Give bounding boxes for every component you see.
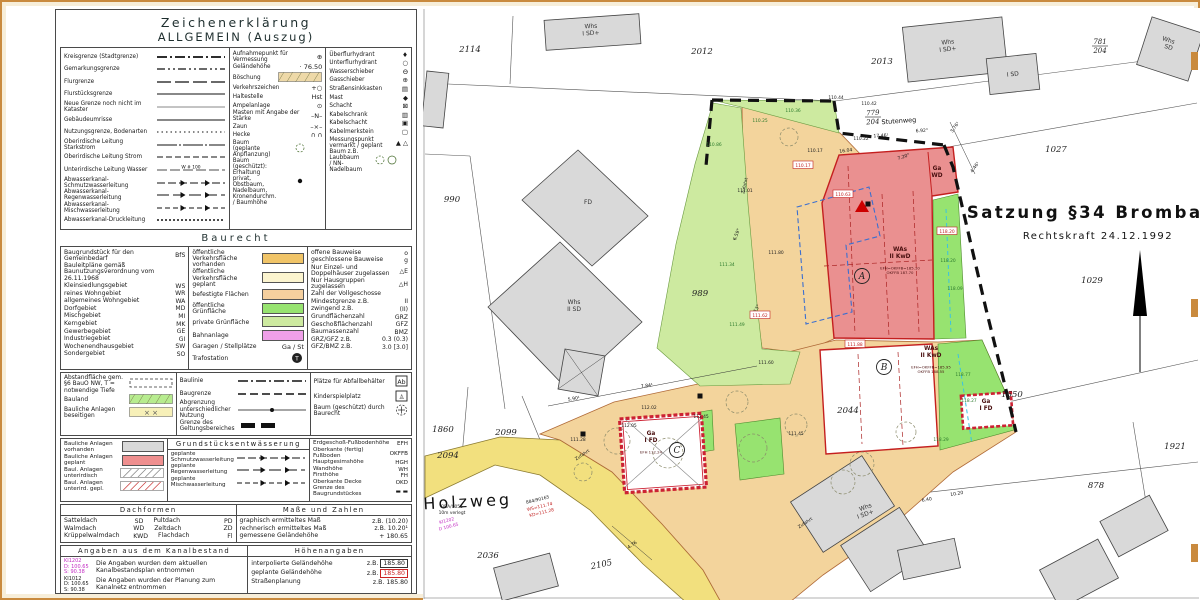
svg-text:Whs: Whs bbox=[568, 299, 581, 306]
legend-abbr: g bbox=[404, 257, 408, 264]
svg-text:WAs: WAs bbox=[893, 247, 908, 253]
legend-label: Böschung bbox=[233, 75, 277, 81]
legend-row: GrundflächenzahlGRZ bbox=[311, 314, 408, 321]
legend-label: Hecke bbox=[233, 132, 309, 138]
legend-row: Baum (geschützt) durch Baurecht bbox=[314, 404, 408, 418]
legend-row: Ampelanlage⊙ bbox=[233, 102, 323, 110]
mid-col3: Plätze für AbfallbehälterAbKinderspielpl… bbox=[310, 373, 411, 435]
legend-label: Abwasserkanal-Mischwasserleitung bbox=[64, 202, 154, 214]
legend-abbr: FH bbox=[401, 473, 408, 479]
svg-text:II KwD: II KwD bbox=[890, 254, 911, 260]
dach-label: Krüppelwalmdach bbox=[64, 533, 131, 540]
bau-col2: Grundstücksentwässerunggeplante Schmutzw… bbox=[167, 439, 309, 501]
color-swatch bbox=[262, 289, 304, 300]
svg-text:111.34: 111.34 bbox=[719, 262, 735, 268]
legend-row: Abstandfläche gem. §6 BauO NW, T = notwe… bbox=[64, 375, 173, 394]
legend-symbol-slot bbox=[120, 481, 164, 493]
legend-label: GFZ/BMZ z.B. bbox=[311, 344, 380, 350]
legend-row: Flurgrenze bbox=[64, 76, 226, 88]
legend-row: allgemeines WohngebietWA bbox=[64, 298, 185, 305]
legend-symbol-slot: ▣ bbox=[402, 119, 408, 127]
legend-symbol: W # 100 bbox=[156, 164, 226, 174]
svg-text:990: 990 bbox=[444, 195, 461, 205]
kanal-code: KI1012D: 100.65S: 90.38 bbox=[64, 577, 94, 594]
baurecht-col3: offene Bauweiseogeschlossene BauweisegNu… bbox=[307, 247, 411, 369]
svg-text:111.80: 111.80 bbox=[768, 250, 784, 256]
hoehen-label: Straßenplanung bbox=[251, 579, 371, 586]
legend-label: Wasserschieber bbox=[329, 69, 401, 75]
legend-row: Überflurhydrant♦ bbox=[329, 51, 408, 59]
legend-row: Aufnahmepunkt für Vermessung⊕ bbox=[233, 51, 323, 63]
legend-symbol bbox=[278, 143, 322, 153]
legend-label: Kabelschacht bbox=[329, 120, 400, 126]
legend-symbol-slot bbox=[122, 441, 164, 454]
legend-symbol: ◆ bbox=[403, 94, 408, 102]
legend-symbol-slot bbox=[236, 464, 306, 476]
hoehen-prefix: z.B. bbox=[367, 570, 378, 577]
legend-symbol bbox=[120, 481, 164, 491]
sheet-frame: Zeichenerklärung ALLGEMEIN (Auszug) Krei… bbox=[0, 0, 1200, 600]
svg-text:2044: 2044 bbox=[836, 406, 859, 416]
legend-row: Oberirdische Leitung Starkstrom bbox=[64, 139, 226, 151]
legend-label: öffentliche Verkehrsfläche geplant bbox=[192, 269, 260, 288]
svg-text:1027: 1027 bbox=[1045, 145, 1067, 155]
legend-symbol: Ga / St bbox=[282, 343, 304, 351]
svg-text:204: 204 bbox=[1092, 47, 1106, 55]
legend-row: WasserschieberΘ bbox=[329, 68, 408, 76]
legend-abbr: (II) bbox=[400, 306, 408, 313]
dach-label: Flachdach bbox=[150, 533, 225, 540]
legend-row: Unterirdische Leitung WasserW # 100 bbox=[64, 164, 226, 176]
legend-row: Oberirdische Leitung Strom bbox=[64, 151, 226, 163]
legend-label: Kabelmerkstein bbox=[329, 129, 400, 135]
legend-dach-masse-box: DachformenSatteldachSDPultdachPDWalmdach… bbox=[60, 504, 412, 544]
legend-label: öffentliche Verkehrsfläche vorhanden bbox=[192, 250, 260, 269]
mid-col1: Abstandfläche gem. §6 BauO NW, T = notwe… bbox=[61, 373, 176, 435]
dach-abbr: SD bbox=[135, 518, 144, 525]
legend-row: öffentliche Verkehrsfläche geplant bbox=[192, 269, 304, 288]
legend-label: Kabelschrank bbox=[329, 112, 400, 118]
legend-row: Gemarkungsgrenze bbox=[64, 63, 226, 75]
legend-symbol: +○ bbox=[311, 84, 322, 92]
legend-symbol-slot bbox=[364, 155, 408, 167]
legend-row: Mast◆ bbox=[329, 94, 408, 102]
legend-symbol: ⊠ bbox=[403, 102, 408, 110]
legend-symbol: Hst bbox=[312, 93, 323, 101]
legend-abbr: △H bbox=[399, 281, 408, 288]
legend-row: Baugrenze bbox=[180, 388, 307, 400]
legend-symbol-slot bbox=[278, 143, 322, 155]
legend-row: Baul. Anlagen unterirdisch bbox=[64, 468, 164, 480]
color-swatch bbox=[262, 303, 304, 314]
legend-label: Geländehöhe bbox=[233, 64, 298, 70]
legend-row: Geländehöhe· 76.50 bbox=[233, 63, 323, 71]
legend-label: Baum z.B. Laubbaum / NN-Nadelbaum bbox=[329, 149, 362, 173]
legend-row: Baugrundstück für den GemeinbedarfBfS bbox=[64, 250, 185, 263]
legend-abbr: WS bbox=[175, 283, 185, 290]
legend-label: Sondergebiet bbox=[64, 351, 175, 357]
legend-row: Bauliche Anlagen vorhanden bbox=[64, 441, 164, 454]
legend-symbol-slot bbox=[262, 289, 304, 302]
legend-label: reines Wohngebiet bbox=[64, 291, 173, 297]
kanal-section: Angaben aus dem KanalbestandKI1202D: 100… bbox=[61, 546, 247, 594]
svg-text:1650: 1650 bbox=[1001, 390, 1023, 400]
legend-symbol-slot: · 76.50 bbox=[300, 63, 323, 71]
legend-row: Abwasserkanal-Regenwasserleitung bbox=[64, 189, 226, 201]
legend-row: Neue Grenze noch nicht im Kataster bbox=[64, 101, 226, 113]
legend-row: TrafostationT bbox=[192, 352, 304, 366]
legend-label: Aufnahmepunkt für Vermessung bbox=[233, 51, 315, 63]
svg-text:204: 204 bbox=[865, 118, 880, 127]
kanal-header: Angaben aus dem Kanalbestand bbox=[61, 546, 247, 557]
legend-symbol-slot bbox=[156, 101, 226, 113]
legend-symbol-slot: +○ bbox=[311, 84, 322, 92]
svg-text:2099: 2099 bbox=[494, 428, 517, 438]
legend-label: Kleinsiedlungsgebiet bbox=[64, 283, 173, 289]
svg-text:I FD: I FD bbox=[645, 438, 658, 444]
legend-symbol-slot bbox=[278, 72, 322, 84]
legend-abbr: BfS bbox=[175, 252, 185, 259]
legend-symbol-slot bbox=[156, 114, 226, 126]
svg-text:110.36: 110.36 bbox=[785, 108, 801, 114]
svg-text:111.49: 111.49 bbox=[729, 322, 745, 328]
legend-symbol-slot: T bbox=[290, 352, 304, 366]
svg-text:T: T bbox=[294, 355, 299, 362]
legend-symbol: –N– bbox=[311, 112, 322, 120]
legend-symbol bbox=[156, 63, 226, 73]
legend-symbol-slot bbox=[262, 303, 304, 316]
legend-label: Gewerbegebiet bbox=[64, 329, 175, 335]
kanal-label: Die Angaben wurden dem aktuellen Kanalbe… bbox=[96, 561, 244, 574]
legend-label: allgemeines Wohngebiet bbox=[64, 298, 173, 304]
legend-symbol bbox=[236, 464, 306, 474]
hoehen-prefix: z.B. bbox=[367, 560, 378, 567]
legend-symbol-slot: ♦ bbox=[402, 51, 408, 59]
legend-symbol-slot: ▤ bbox=[402, 85, 408, 93]
legend-row: Kabelschacht▣ bbox=[329, 119, 408, 127]
masse-header: Maße und Zahlen bbox=[237, 505, 412, 516]
svg-text:110.86: 110.86 bbox=[706, 142, 722, 148]
legend-label: geplante Regenwasserleitung bbox=[171, 464, 234, 476]
legend-label: Geschoßflächenzahl bbox=[311, 322, 394, 328]
legend-row: befestigte Flächen bbox=[192, 289, 304, 302]
site-plan-map: 2114201220131027102999098918602099209420… bbox=[423, 8, 1200, 600]
legend-label: Grenze des Geltungsbereiches bbox=[180, 420, 235, 432]
mid-col2: BaulinieBaugrenzeAbgrenzung unterschiedl… bbox=[176, 373, 310, 435]
legend-symbol-slot bbox=[156, 177, 226, 189]
dachformen-section: DachformenSatteldachSDPultdachPDWalmdach… bbox=[61, 505, 236, 543]
protected-tree-icon bbox=[395, 404, 408, 416]
legend-symbol bbox=[156, 51, 226, 61]
bau-col3: Erdgeschoß-FußbodenhöheEFHOberkante (fer… bbox=[309, 439, 411, 501]
kanal-row: KI1202D: 100.65S: 90.38Die Angaben wurde… bbox=[64, 559, 244, 576]
legend-label: Verkehrszeichen bbox=[233, 85, 310, 91]
legend-symbol-slot bbox=[237, 404, 307, 416]
legend-label: Dorfgebiet bbox=[64, 306, 173, 312]
svg-text:110.22: 110.22 bbox=[853, 136, 869, 142]
legend-symbol-slot bbox=[156, 151, 226, 163]
legend-symbol-slot: ◆ bbox=[403, 94, 408, 102]
legend-row: Baum (geplante Anpflanzung) bbox=[233, 140, 323, 158]
svg-text:C: C bbox=[674, 446, 681, 456]
legend-symbol bbox=[156, 76, 226, 86]
legend-label: private Grünfläche bbox=[192, 320, 260, 326]
svg-text:989: 989 bbox=[692, 289, 709, 299]
dach-abbr: ZD bbox=[223, 525, 232, 532]
legend-symbol bbox=[156, 177, 226, 187]
legend-symbol-slot: ∩ ∩ bbox=[311, 131, 323, 139]
svg-text:111.62: 111.62 bbox=[752, 313, 768, 319]
svg-text:W # 100: W # 100 bbox=[181, 165, 200, 171]
svg-text:B: B bbox=[880, 363, 888, 373]
planned-parcel-b bbox=[820, 344, 938, 454]
legend-label: Überflurhydrant bbox=[329, 52, 400, 58]
legend-mid-box: Abstandfläche gem. §6 BauO NW, T = notwe… bbox=[60, 372, 412, 436]
masse-section: Maße und Zahlengraphisch ermitteltes Maß… bbox=[236, 505, 412, 543]
legend-label: Zaun bbox=[233, 124, 309, 130]
dach-label: Pultdach bbox=[145, 518, 222, 525]
dach-label: Zeltdach bbox=[146, 526, 221, 533]
legend-label: Bauliche Anlagen geplant bbox=[64, 455, 120, 467]
masse-value: z.B. 10.20¹ bbox=[374, 525, 408, 532]
legend-panel: Zeichenerklärung ALLGEMEIN (Auszug) Krei… bbox=[55, 9, 417, 594]
legend-label: Industriegebiet bbox=[64, 336, 177, 342]
legend-symbol: –×– bbox=[310, 123, 322, 131]
svg-text:6.92°: 6.92° bbox=[916, 128, 929, 135]
legend-symbol bbox=[278, 176, 322, 186]
legend-symbol-slot bbox=[129, 378, 173, 390]
svg-text:I SD: I SD bbox=[1006, 70, 1019, 78]
legend-symbol: ▣ bbox=[402, 119, 408, 127]
legend-row: IndustriegebietGI bbox=[64, 336, 185, 343]
legend-label: Neue Grenze noch nicht im Kataster bbox=[64, 101, 154, 113]
legend-label: Grenze des Baugrundstückes bbox=[313, 486, 394, 498]
legend-symbol: ▥ bbox=[402, 111, 408, 119]
legend-label: Kerngebiet bbox=[64, 321, 174, 327]
color-swatch bbox=[262, 316, 304, 327]
legend-symbol: ⊕ bbox=[317, 53, 322, 61]
legend-label: Baul. Anlagen unterirdisch bbox=[64, 468, 118, 480]
dachform-row: KrüppelwalmdachKWDFlachdachFl bbox=[64, 533, 233, 540]
color-swatch bbox=[262, 330, 304, 341]
svg-text:112.02: 112.02 bbox=[641, 405, 657, 411]
legend-kanal-box: Angaben aus dem KanalbestandKI1202D: 100… bbox=[60, 545, 412, 594]
legend-label: Baulinie bbox=[180, 378, 235, 384]
legend-abbr: ▬ ▬ bbox=[396, 489, 408, 495]
legend-row: Abwasserkanal-Schmutzwasserleitung bbox=[64, 177, 226, 189]
hoehen-value: 185.80 bbox=[380, 569, 408, 578]
legend-row: Nutzungsgrenze, Bodenarten bbox=[64, 126, 226, 138]
legend-symbol bbox=[236, 477, 306, 487]
legend-row: Baum (geschützt): Erhaltung privat, Obst… bbox=[233, 158, 323, 206]
legend-row: Verkehrszeichen+○ bbox=[233, 84, 323, 92]
legend-symbol bbox=[156, 101, 226, 111]
hoehen-label: geplante Geländehöhe bbox=[251, 570, 365, 577]
site-plan-svg: 2114201220131027102999098918602099209420… bbox=[423, 8, 1200, 600]
legend-symbol: ⊕ bbox=[403, 76, 408, 84]
legend-abbr: o bbox=[404, 250, 408, 257]
svg-text:Ga: Ga bbox=[982, 399, 991, 405]
legend-row: KerngebietMK bbox=[64, 321, 185, 328]
legend-symbol-slot bbox=[262, 253, 304, 266]
legend-row: Messungspunkt vermarkt / geplant▲ △ bbox=[329, 137, 408, 149]
legend-symbol: ▢ bbox=[402, 128, 408, 136]
legend-label: Flurstücksgrenze bbox=[64, 91, 154, 97]
masse-label: rechnerisch ermitteltes Maß bbox=[240, 526, 373, 533]
legend-symbol-slot bbox=[237, 420, 307, 432]
legend-label: Ampelanlage bbox=[233, 103, 315, 109]
legend-symbol-slot: ⊠ bbox=[403, 102, 408, 110]
legend-symbol bbox=[156, 151, 226, 161]
legend-label: Abgrenzung unterschiedlicher Nutzung bbox=[180, 400, 235, 419]
legend-row: KleinsiedlungsgebietWS bbox=[64, 283, 185, 290]
dach-abbr: WD bbox=[133, 525, 144, 532]
legend-symbol-slot bbox=[156, 202, 226, 214]
waste-container-icon: Ab bbox=[395, 375, 408, 387]
legend-row: Baulinie bbox=[180, 375, 307, 387]
legend-symbol-slot: ⊕ bbox=[403, 76, 408, 84]
legend-row: Grenze des Geltungsbereiches bbox=[180, 420, 307, 432]
legend-row: GFZ/BMZ z.B.3.0 [3.0] bbox=[311, 344, 408, 351]
legend-abbr: MK bbox=[176, 321, 185, 328]
svg-text:1029: 1029 bbox=[1081, 276, 1103, 286]
baurecht-col1: Baugrundstück für den GemeinbedarfBfSBau… bbox=[61, 247, 188, 369]
legend-symbol-slot bbox=[237, 375, 307, 387]
legend-row: SondergebietSO bbox=[64, 351, 185, 358]
legend-symbol-slot: Ga / St bbox=[282, 343, 304, 351]
legend-symbol-slot: Hst bbox=[312, 93, 323, 101]
legend-label: zwingend z.B. bbox=[311, 306, 398, 312]
legend-abbr: GE bbox=[177, 328, 186, 335]
legend-abbr: EFH bbox=[397, 441, 408, 447]
legend-label: Haltestelle bbox=[233, 94, 310, 100]
masse-row: gemessene Geländehöhe+ 180.65 bbox=[240, 533, 409, 540]
legend-symbol-slot bbox=[120, 468, 164, 480]
legend-label: Abwasserkanal-Schmutzwasserleitung bbox=[64, 177, 154, 189]
legend-label: offene Bauweise bbox=[311, 250, 402, 256]
legend-label: geplante Schmutzwasserleitung bbox=[171, 452, 234, 464]
legend-label: Unterirdische Leitung Wasser bbox=[64, 167, 154, 173]
svg-text:II KwD: II KwD bbox=[921, 353, 942, 359]
legend-row: Masten mit Angabe der Stärke–N– bbox=[233, 110, 323, 122]
svg-text:118.20: 118.20 bbox=[940, 258, 956, 264]
legend-label: Baumassenzahl bbox=[311, 329, 392, 335]
baurecht-col2: öffentliche Verkehrsfläche vorhandenöffe… bbox=[188, 247, 307, 369]
legend-label: Gemarkungsgrenze bbox=[64, 66, 154, 72]
legend-symbol bbox=[156, 88, 226, 98]
legend-abbr: SW bbox=[175, 343, 185, 350]
legend-symbol-slot: W # 100 bbox=[156, 164, 226, 176]
legend-symbol: ∩ ∩ bbox=[311, 131, 323, 139]
svg-text:Satzung §34 Brombach: Satzung §34 Brombach bbox=[967, 203, 1200, 222]
legend-label: Messungspunkt vermarkt / geplant bbox=[329, 137, 394, 149]
legend-row: geplante Schmutzwasserleitung bbox=[171, 452, 306, 464]
legend-label: Mindestgrenze z.B. bbox=[311, 299, 402, 305]
svg-text:779: 779 bbox=[866, 109, 880, 118]
svg-text:OKFFB 188.55: OKFFB 188.55 bbox=[918, 369, 946, 374]
legend-label: Trafostation bbox=[192, 356, 288, 362]
svg-text:WAs: WAs bbox=[924, 346, 939, 352]
svg-text:110.63: 110.63 bbox=[835, 192, 851, 198]
legend-symbol-slot bbox=[262, 272, 304, 285]
legend-row: öffentliche Grünfläche bbox=[192, 303, 304, 316]
svg-text:110.17: 110.17 bbox=[807, 148, 823, 154]
legend-symbol-slot bbox=[237, 388, 307, 400]
legend-row: Bauliche Anlagen beseitigen× × bbox=[64, 407, 173, 419]
legend-symbol: Θ bbox=[403, 68, 408, 76]
svg-text:118.27: 118.27 bbox=[961, 398, 977, 404]
svg-text:781: 781 bbox=[1093, 38, 1106, 46]
svg-text:112.05: 112.05 bbox=[621, 423, 637, 429]
legend-baurecht-box: Baugrundstück für den GemeinbedarfBfSBau… bbox=[60, 246, 412, 370]
legend-symbol bbox=[156, 214, 226, 224]
legend-symbol-slot bbox=[236, 452, 306, 464]
legend-label: Kinderspielplatz bbox=[314, 394, 393, 400]
legend-row: Bahnanlage bbox=[192, 330, 304, 343]
legend-symbol bbox=[129, 394, 173, 404]
legend-abbr: GFZ bbox=[396, 321, 408, 328]
legend-label: Straßensinkkasten bbox=[329, 86, 400, 92]
legend-symbol-slot: ▥ bbox=[402, 111, 408, 119]
svg-text:110.42: 110.42 bbox=[861, 101, 877, 107]
legend-symbol bbox=[236, 452, 306, 462]
legend-symbol-slot bbox=[156, 76, 226, 88]
legend-symbol bbox=[278, 72, 322, 82]
legend-row: Böschung bbox=[233, 72, 323, 84]
legend-label: Baugrenze bbox=[180, 391, 235, 397]
legend-row: Baul. Anlagen unterird. gepl. bbox=[64, 481, 164, 493]
legend-abbr: HGH bbox=[395, 460, 408, 466]
legend-label: Oberirdische Leitung Starkstrom bbox=[64, 139, 154, 151]
legend-row: Straßensinkkasten▤ bbox=[329, 85, 408, 93]
legend-label: Abwasserkanal-Druckleitung bbox=[64, 217, 154, 223]
legend-general-box: Kreisgrenze (Stadtgrenze)Gemarkungsgrenz… bbox=[60, 47, 412, 230]
legend-row: zwingend z.B.(II) bbox=[311, 306, 408, 313]
svg-text:FD: FD bbox=[584, 199, 592, 206]
legend-gen-col2: Aufnahmepunkt für Vermessung⊕Geländehöhe… bbox=[229, 48, 326, 229]
legend-gen-col3: Überflurhydrant♦Unterflurhydrant○Wassers… bbox=[325, 48, 411, 229]
legend-label: Nutzungsgrenze, Bodenarten bbox=[64, 129, 154, 135]
hoehen-prefix: z.B. bbox=[373, 579, 384, 586]
legend-label: Bauliche Anlagen vorhanden bbox=[64, 442, 120, 454]
legend-row: Unterflurhydrant○ bbox=[329, 59, 408, 67]
legend-label: Mast bbox=[329, 95, 401, 101]
legend-symbol-slot bbox=[395, 404, 408, 418]
svg-text:111.60: 111.60 bbox=[758, 360, 774, 366]
legend-symbol bbox=[129, 378, 173, 388]
legend-symbol-slot: ♙ bbox=[395, 390, 408, 404]
svg-text:112.45: 112.45 bbox=[693, 414, 709, 420]
legend-symbol bbox=[120, 468, 164, 478]
legend-abbr: GRZ bbox=[395, 314, 408, 321]
legend-symbol-slot: Ab bbox=[395, 375, 408, 389]
masse-row: graphisch ermitteltes Maßz.B. (10.20) bbox=[240, 518, 409, 525]
color-swatch bbox=[122, 441, 164, 452]
hoehen-row: Straßenplanungz.B.185.80 bbox=[251, 579, 408, 586]
svg-text:111.45: 111.45 bbox=[788, 431, 804, 437]
legend-label: Plätze für Abfallbehälter bbox=[314, 379, 393, 385]
legend-label: Unterflurhydrant bbox=[329, 60, 400, 66]
svg-text:2036: 2036 bbox=[476, 551, 499, 561]
svg-text:Rechtskraft 24.12.1992: Rechtskraft 24.12.1992 bbox=[1023, 231, 1173, 242]
legend-symbol bbox=[156, 202, 226, 212]
svg-text:2013: 2013 bbox=[870, 57, 893, 67]
legend-row: Bauleitpläne gemäß Baunutzungsverordnung… bbox=[64, 263, 185, 282]
svg-text:2114: 2114 bbox=[458, 45, 481, 55]
legend-symbol bbox=[237, 375, 307, 385]
svg-text:110.17: 110.17 bbox=[795, 163, 811, 169]
legend-label: Baum (geschützt) durch Baurecht bbox=[314, 405, 393, 417]
